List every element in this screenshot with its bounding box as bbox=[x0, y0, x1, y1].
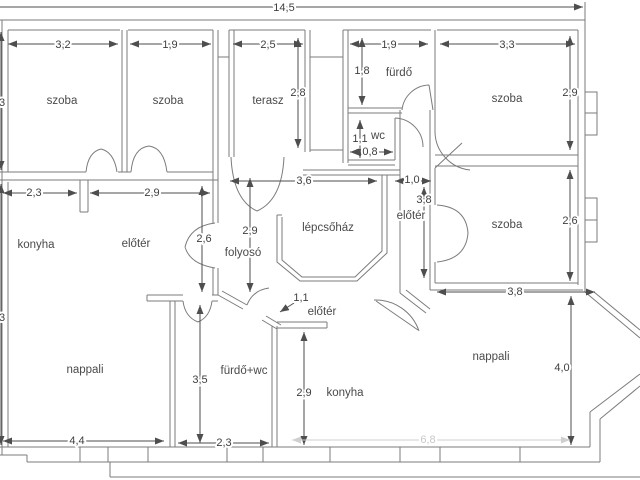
room-label-folyoso: folyosó bbox=[225, 247, 261, 259]
room-label-furdo-wc: fürdő+wc bbox=[221, 365, 268, 377]
room-label-terasz: terasz bbox=[252, 95, 284, 107]
door-szoba-tl bbox=[86, 149, 117, 172]
folyoso-left-wall bbox=[213, 180, 218, 295]
room-label-szoba-tr: szoba bbox=[492, 93, 523, 105]
dim-entry-door: 1,1 bbox=[293, 292, 308, 304]
dim-szoba-mr-h: 2,6 bbox=[562, 215, 577, 227]
dim-wc-h: 1,1 bbox=[352, 133, 367, 145]
corridor-diagonal-wall bbox=[400, 290, 430, 313]
dim-nappali-l-w: 4,4 bbox=[69, 435, 84, 447]
terasz-left-wall bbox=[229, 30, 234, 157]
room-label-nappali-left: nappali bbox=[66, 364, 103, 376]
room-label-lepcsohaz: lépcsőház bbox=[302, 222, 354, 234]
pillar bbox=[80, 180, 88, 212]
bottom-outer-wall bbox=[0, 455, 640, 477]
room-label-nappali-right: nappali bbox=[472, 351, 509, 363]
room-label-szoba-mr: szoba bbox=[492, 219, 523, 231]
door-wc bbox=[395, 118, 423, 147]
entry-diagonal-wall bbox=[218, 291, 281, 329]
room-label-szoba-tl: szoba bbox=[47, 95, 78, 107]
dim-corridor-h: 3,8 bbox=[416, 194, 431, 206]
dim-arrow-entry-door bbox=[280, 303, 294, 312]
floorplan-svg: 14,5 3,2 1,9 2,5 1,9 3,3 2,8 1,8 2,9 1,1… bbox=[0, 0, 640, 480]
dim-lepcsohaz-w: 3,6 bbox=[296, 175, 311, 187]
dim-bottom-faint: 6,8 bbox=[420, 434, 435, 446]
door-eloter-left bbox=[185, 223, 215, 268]
dim-left-bottom: ,3 bbox=[0, 312, 5, 324]
door-szoba-tr bbox=[435, 132, 470, 170]
terasz-right-wall bbox=[305, 30, 310, 152]
shaft-walls bbox=[310, 30, 348, 163]
dim-terasz-h: 2,8 bbox=[290, 87, 305, 99]
dim-konyha-w: 2,3 bbox=[26, 187, 41, 199]
door-furdo bbox=[402, 85, 433, 110]
furdo-bottom-wall bbox=[348, 108, 402, 113]
dim-furdo-wc-w: 2,3 bbox=[216, 437, 231, 449]
dim-szoba-mr-w: 3,8 bbox=[507, 286, 522, 298]
mid-band-wall bbox=[0, 172, 218, 180]
door-terasz bbox=[231, 157, 284, 211]
furdo-wc-top-wall bbox=[147, 295, 218, 301]
wall-szoba1-szoba2 bbox=[122, 30, 127, 172]
bay-window-walls bbox=[585, 292, 640, 462]
cap-wall bbox=[277, 322, 327, 328]
dim-szoba-tr-w: 3,3 bbox=[499, 39, 514, 51]
room-labels: szoba szoba terasz fürdő wc szoba szoba … bbox=[17, 67, 522, 399]
doors bbox=[86, 85, 470, 331]
dim-szoba-tm-w: 1,9 bbox=[162, 39, 177, 51]
furdo-wc-left-wall bbox=[170, 301, 175, 447]
dim-furdo-wc-h: 3,5 bbox=[192, 374, 207, 386]
dim-left-top: ,3 bbox=[0, 97, 5, 109]
dim-szoba-tr-h: 2,9 bbox=[562, 87, 577, 99]
floorplan-canvas: 14,5 3,2 1,9 2,5 1,9 3,3 2,8 1,8 2,9 1,1… bbox=[0, 0, 640, 480]
furdo-wc-right-wall bbox=[272, 326, 277, 447]
wall-szoba-tr-mr bbox=[435, 155, 578, 166]
room-label-furdo-top: fürdő bbox=[386, 67, 412, 79]
dim-terasz-w: 2,5 bbox=[260, 39, 275, 51]
dim-konyha-b-h: 2,9 bbox=[296, 387, 311, 399]
dim-folyoso-h: 2,9 bbox=[242, 225, 257, 237]
dim-eloter-door: 2,6 bbox=[196, 233, 211, 245]
room-label-konyha-bottom: konyha bbox=[326, 387, 364, 399]
dim-furdo-w: 1,9 bbox=[381, 39, 396, 51]
room-label-eloter-left: előtér bbox=[122, 238, 151, 250]
stairwell-top-wall bbox=[303, 170, 400, 175]
dim-wc-w: 0,8 bbox=[362, 146, 377, 158]
right-window-bumps bbox=[585, 92, 597, 242]
door-szoba-mr bbox=[437, 205, 468, 262]
room-label-szoba-tm: szoba bbox=[153, 95, 184, 107]
room-label-eloter-bottom: előtér bbox=[308, 306, 337, 318]
wall-szoba2-right bbox=[213, 30, 218, 180]
dim-eloter-w: 2,9 bbox=[144, 187, 159, 199]
dim-szoba-tl-w: 3,2 bbox=[55, 39, 70, 51]
door-szoba-tm bbox=[131, 146, 167, 172]
bottom-window-mullions bbox=[80, 447, 520, 462]
dim-furdo-h: 1,8 bbox=[354, 65, 369, 77]
dim-corridor-w: 1,0 bbox=[404, 174, 419, 186]
door-entry-main bbox=[374, 300, 419, 331]
dim-total-width: 14,5 bbox=[273, 2, 294, 14]
left-outer-wall bbox=[2, 20, 8, 455]
room-label-konyha-left: konyha bbox=[17, 239, 55, 251]
right-outer-wall bbox=[578, 20, 585, 292]
door-furdo-wc bbox=[183, 301, 212, 322]
chimney bbox=[218, 30, 229, 57]
walls bbox=[0, 2, 640, 477]
dim-nappali-r-h: 4,0 bbox=[554, 362, 569, 374]
room-label-eloter-right: előtér bbox=[397, 210, 426, 222]
room-label-wc: wc bbox=[370, 130, 385, 142]
